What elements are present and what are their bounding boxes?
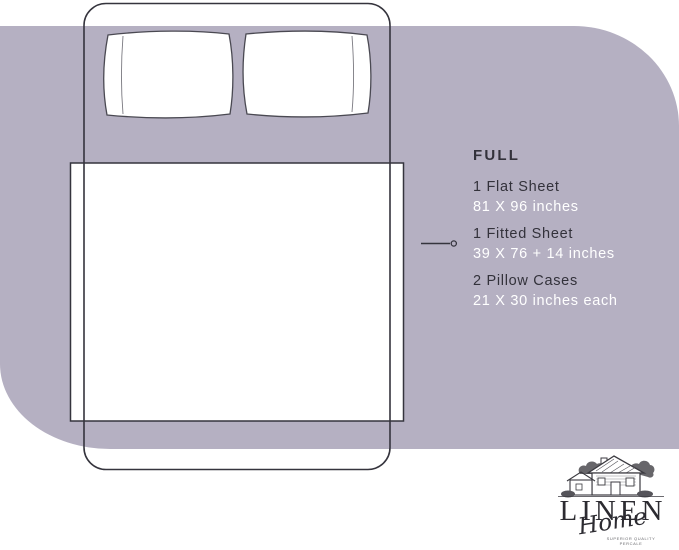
callout-dot xyxy=(451,241,456,246)
item-dimensions: 21 X 30 inches each xyxy=(473,291,618,311)
flat-sheet-shape xyxy=(71,163,404,421)
door-shape xyxy=(611,482,620,495)
pillow-left-shape xyxy=(104,31,233,118)
size-label: FULL xyxy=(473,147,618,164)
item-name: 2 Pillow Cases xyxy=(473,271,618,291)
pillow-right-shape xyxy=(243,31,371,117)
window-left-shape xyxy=(598,478,605,485)
list-item: 2 Pillow Cases 21 X 30 inches each xyxy=(473,271,618,311)
brand-wordmark: LINEN Home xyxy=(552,496,670,526)
list-item: 1 Flat Sheet 81 X 96 inches xyxy=(473,177,618,217)
item-name: 1 Flat Sheet xyxy=(473,177,618,197)
item-dimensions: 81 X 96 inches xyxy=(473,197,618,217)
window-right-shape xyxy=(626,478,634,486)
list-item: 1 Fitted Sheet 39 X 76 + 14 inches xyxy=(473,224,618,264)
item-dimensions: 39 X 76 + 14 inches xyxy=(473,244,618,264)
size-info-block: FULL 1 Flat Sheet 81 X 96 inches 1 Fitte… xyxy=(473,147,618,318)
item-name: 1 Fitted Sheet xyxy=(473,224,618,244)
brand-logo: LINEN Home SUPERIOR QUALITY PERCALE xyxy=(552,452,670,548)
house-icon xyxy=(552,452,670,498)
brand-tagline: SUPERIOR QUALITY PERCALE xyxy=(600,536,662,546)
tagline-line-2: PERCALE xyxy=(600,541,662,546)
window-wing-shape xyxy=(576,484,582,490)
bedding-size-infographic: FULL 1 Flat Sheet 81 X 96 inches 1 Fitte… xyxy=(0,0,679,550)
